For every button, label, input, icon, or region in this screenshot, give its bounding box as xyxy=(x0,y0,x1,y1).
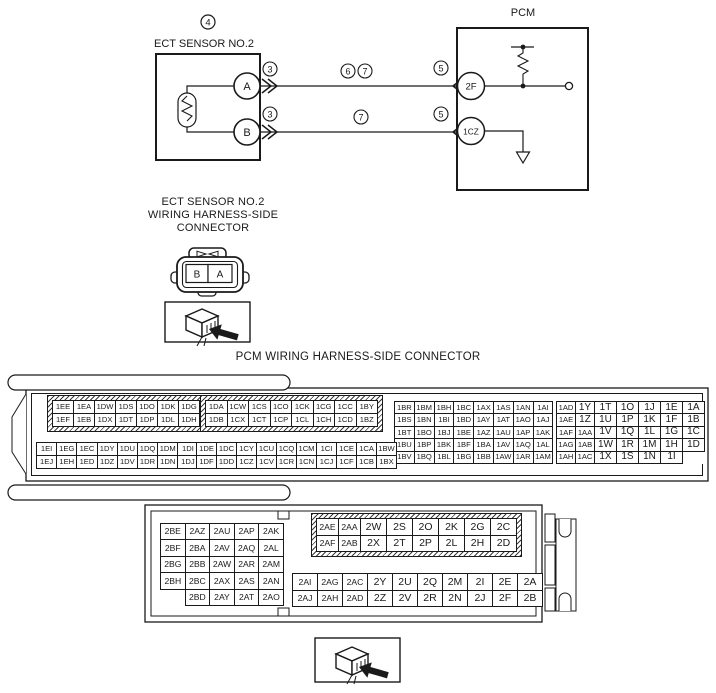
terminal-cell-2AA: 2AA xyxy=(339,519,361,536)
terminal-cell-1DN: 1DN xyxy=(158,456,178,469)
terminal-cell-2AV: 2AV xyxy=(210,540,235,556)
terminal-cell-1AU: 1AU xyxy=(493,426,513,438)
ect-view-icon-box xyxy=(165,302,250,346)
terminal-cell-1AH: 1AH xyxy=(557,451,576,463)
terminal-cell-1CD: 1CD xyxy=(335,414,357,427)
terminal-cell-1CB: 1CB xyxy=(357,456,377,469)
terminal-cell-1EI: 1EI xyxy=(37,443,57,456)
terminal-cell-2AU: 2AU xyxy=(210,524,235,540)
terminal-cell-2AB: 2AB xyxy=(339,535,361,552)
terminal-cell-2AZ: 2AZ xyxy=(185,524,210,540)
svg-text:5: 5 xyxy=(438,63,443,73)
terminal-cell-2AC: 2AC xyxy=(343,574,368,591)
terminal-cell-1CR: 1CR xyxy=(277,456,297,469)
terminal-cell-1M: 1M xyxy=(639,439,661,451)
terminal-cell-1CP: 1CP xyxy=(270,414,292,427)
terminal-cell-2B: 2B xyxy=(518,590,543,607)
terminal-cell-2BD: 2BD xyxy=(185,589,210,605)
terminal-cell-1DT: 1DT xyxy=(116,414,137,427)
terminal-cell-1BM: 1BM xyxy=(414,402,434,414)
terminal-cell-1BF: 1BF xyxy=(454,439,474,451)
terminal-cell-2AJ: 2AJ xyxy=(293,590,318,607)
terminal-block-2A-bottom: 2AI2AG2AC2Y2U2Q2M2I2E2A2AJ2AH2AD2Z2V2R2N… xyxy=(292,573,543,607)
terminal-cell-2S: 2S xyxy=(387,519,413,536)
terminal-cell-1BV: 1BV xyxy=(395,451,415,463)
terminal-cell-1X: 1X xyxy=(595,451,617,463)
mounting-bracket xyxy=(545,514,576,611)
internal-terminal-icon xyxy=(565,82,572,89)
terminal-cell-1AD: 1AD xyxy=(557,402,576,414)
pcm-pin-1cz: 1CZ xyxy=(458,118,485,145)
terminal-cell-2AT: 2AT xyxy=(234,589,259,605)
terminal-cell-2AS: 2AS xyxy=(234,573,259,589)
terminal-cell-1K: 1K xyxy=(639,414,661,426)
terminal-cell-2W: 2W xyxy=(361,519,387,536)
terminal-cell-1DB: 1DB xyxy=(206,414,228,427)
terminal-cell-2AO: 2AO xyxy=(259,589,284,605)
terminal-cell-1DH: 1DH xyxy=(179,414,200,427)
terminal-cell-1DJ: 1DJ xyxy=(178,456,198,469)
terminal-cell-2L: 2L xyxy=(439,535,465,552)
terminal-cell-1EH: 1EH xyxy=(57,456,77,469)
callout-3-bottom: 3 xyxy=(263,107,277,121)
terminal-cell-2M: 2M xyxy=(443,574,468,591)
terminal-cell-2R: 2R xyxy=(418,590,443,607)
terminal-cell-1DQ: 1DQ xyxy=(137,443,157,456)
terminal-cell-1BG: 1BG xyxy=(454,451,474,463)
terminal-cell-2AF: 2AF xyxy=(317,535,339,552)
pcm-connector-2: 2BE2AZ2AU2AP2AK2BF2BA2AV2AQ2AL2BG2BB2AW2… xyxy=(0,500,716,638)
terminal-block-1C-top: 1DA1CW1CS1CO1CK1CG1CC1BY1DB1CX1CT1CP1CL1… xyxy=(200,395,383,432)
svg-text:7: 7 xyxy=(358,112,363,122)
terminal-cell-1AA: 1AA xyxy=(576,426,595,438)
terminal-cell-1BY: 1BY xyxy=(356,401,378,414)
pcm-connector-title: PCM WIRING HARNESS-SIDE CONNECTOR xyxy=(0,351,716,363)
terminal-cell-1EA: 1EA xyxy=(74,401,95,414)
callout-5-top: 5 xyxy=(434,61,448,75)
terminal-cell-1DK: 1DK xyxy=(158,401,179,414)
terminal-cell-2N: 2N xyxy=(443,590,468,607)
terminal-cell-1CV: 1CV xyxy=(257,456,277,469)
terminal-cell-1EB: 1EB xyxy=(74,414,95,427)
terminal-cell-1AW: 1AW xyxy=(493,451,513,463)
terminal-cell-2U: 2U xyxy=(393,574,418,591)
terminal-cell-1AF: 1AF xyxy=(557,426,576,438)
terminal-cell-1AP: 1AP xyxy=(513,426,533,438)
terminal-cell-2BA: 2BA xyxy=(185,540,210,556)
terminal-cell-1F: 1F xyxy=(661,414,683,426)
terminal-cell-2H: 2H xyxy=(465,535,491,552)
terminal-cell-1BL: 1BL xyxy=(434,451,454,463)
terminal-cell-1DP: 1DP xyxy=(137,414,158,427)
svg-text:B: B xyxy=(243,127,250,139)
terminal-cell-1BB: 1BB xyxy=(474,451,494,463)
terminal-cell-2BG: 2BG xyxy=(161,556,186,572)
terminal-cell-1CE: 1CE xyxy=(337,443,357,456)
terminal-cell-2AG: 2AG xyxy=(318,574,343,591)
terminal-cell-1CG: 1CG xyxy=(313,401,335,414)
terminal-cell-1BD: 1BD xyxy=(454,414,474,426)
terminal-cell-1DX: 1DX xyxy=(95,414,116,427)
callout-7-top: 7 xyxy=(358,64,372,78)
terminal-cell-1CC: 1CC xyxy=(335,401,357,414)
terminal-cell-1AO: 1AO xyxy=(513,414,533,426)
terminal-cell-1BN: 1BN xyxy=(414,414,434,426)
terminal-cell-1CW: 1CW xyxy=(227,401,249,414)
terminal-cell-1CT: 1CT xyxy=(249,414,271,427)
terminal-cell-1D: 1D xyxy=(683,439,705,451)
terminal-cell-2BE: 2BE xyxy=(161,524,186,540)
terminal-cell-1BS: 1BS xyxy=(395,414,415,426)
terminal-cell-1DE: 1DE xyxy=(197,443,217,456)
terminal-cell-1DG: 1DG xyxy=(179,401,200,414)
terminal-cell-1AG: 1AG xyxy=(557,439,576,451)
terminal-cell-1AS: 1AS xyxy=(493,402,513,414)
sensor-pin-a: A xyxy=(234,73,260,99)
terminal-cell-1I: 1I xyxy=(661,451,683,463)
terminal-cell-1S: 1S xyxy=(617,451,639,463)
terminal-cell-1AT: 1AT xyxy=(493,414,513,426)
terminal-cell-1AJ: 1AJ xyxy=(533,414,553,426)
terminal-block-2B-left: 2BE2AZ2AU2AP2AK2BF2BA2AV2AQ2AL2BG2BB2AW2… xyxy=(160,523,284,606)
terminal-cell-1C: 1C xyxy=(683,426,705,438)
callout-7-bottom: 7 xyxy=(354,110,368,124)
terminal-cell-2Z: 2Z xyxy=(368,590,393,607)
terminal-cell-1CX: 1CX xyxy=(227,414,249,427)
svg-text:A: A xyxy=(243,81,251,93)
terminal-cell-1AY: 1AY xyxy=(474,414,494,426)
terminal-cell-1G: 1G xyxy=(661,426,683,438)
terminal-cell-1O: 1O xyxy=(617,402,639,414)
terminal-cell-1AX: 1AX xyxy=(474,402,494,414)
terminal-cell-1DF: 1DF xyxy=(197,456,217,469)
terminal-cell-2BH: 2BH xyxy=(161,573,186,589)
terminal-cell-1BH: 1BH xyxy=(434,402,454,414)
terminal-cell-1BE: 1BE xyxy=(454,426,474,438)
terminal-block-1E-bottom: 1EI1EG1EC1DY1DU1DQ1DM1DI1EJ1EH1ED1DZ1DV1… xyxy=(36,442,199,469)
terminal-cell-1AV: 1AV xyxy=(493,439,513,451)
terminal-cell-1Q: 1Q xyxy=(617,426,639,438)
terminal-cell-1E: 1E xyxy=(661,402,683,414)
circuit-diagram: 4 ECT SENSOR NO.2 A B 3 3 xyxy=(0,0,716,200)
terminal-cell-1AR: 1AR xyxy=(513,451,533,463)
terminal-cell-1EE: 1EE xyxy=(53,401,74,414)
terminal-cell-1AB: 1AB xyxy=(576,439,595,451)
terminal-block-1B: 1BR1BM1BH1BC1AX1AS1AN1AI1BS1BN1BI1BD1AY1… xyxy=(394,401,553,464)
svg-text:3: 3 xyxy=(267,64,272,74)
terminal-label-b: B xyxy=(194,270,201,281)
terminal-cell-1BZ: 1BZ xyxy=(356,414,378,427)
svg-text:7: 7 xyxy=(362,66,367,76)
terminal-cell-2I: 2I xyxy=(468,574,493,591)
terminal-cell-empty xyxy=(683,451,705,463)
terminal-cell-1DM: 1DM xyxy=(158,443,178,456)
terminal-cell-2K: 2K xyxy=(439,519,465,536)
terminal-cell-1DW: 1DW xyxy=(95,401,116,414)
terminal-block-1A: 1AD1Y1T1O1J1E1A1AE1Z1U1P1K1F1B1AF1AA1V1Q… xyxy=(556,401,705,464)
svg-text:4: 4 xyxy=(205,17,210,28)
terminal-cell-2AP: 2AP xyxy=(234,524,259,540)
svg-text:6: 6 xyxy=(345,66,350,76)
terminal-cell-1AI: 1AI xyxy=(533,402,553,414)
terminal-cell-1CQ: 1CQ xyxy=(277,443,297,456)
terminal-cell-1CK: 1CK xyxy=(292,401,314,414)
terminal-cell-1P: 1P xyxy=(617,414,639,426)
terminal-cell-1CY: 1CY xyxy=(237,443,257,456)
terminal-cell-1DI: 1DI xyxy=(178,443,198,456)
terminal-cell-empty xyxy=(161,589,186,605)
terminal-cell-1CS: 1CS xyxy=(249,401,271,414)
terminal-cell-1DY: 1DY xyxy=(97,443,117,456)
terminal-cell-1Z: 1Z xyxy=(576,414,595,426)
terminal-cell-2AR: 2AR xyxy=(234,556,259,572)
terminal-cell-1AQ: 1AQ xyxy=(513,439,533,451)
pcm-view-icon-box xyxy=(300,633,430,693)
thermistor-icon xyxy=(178,93,196,127)
terminal-cell-1CF: 1CF xyxy=(337,456,357,469)
svg-text:5: 5 xyxy=(438,109,443,119)
terminal-cell-1CM: 1CM xyxy=(297,443,317,456)
terminal-cell-1J: 1J xyxy=(639,402,661,414)
terminal-cell-2BC: 2BC xyxy=(185,573,210,589)
terminal-cell-1N: 1N xyxy=(639,451,661,463)
terminal-block-1E-top: 1EE1EA1DW1DS1DO1DK1DG1EF1EB1DX1DT1DP1DL1… xyxy=(47,395,205,432)
terminal-cell-2C: 2C xyxy=(491,519,517,536)
svg-text:1CZ: 1CZ xyxy=(463,126,479,136)
terminal-cell-2D: 2D xyxy=(491,535,517,552)
ect-connector-face: B A xyxy=(171,248,249,296)
terminal-cell-1B: 1B xyxy=(683,414,705,426)
callout-6: 6 xyxy=(341,64,355,78)
terminal-cell-2BB: 2BB xyxy=(185,556,210,572)
terminal-cell-1BK: 1BK xyxy=(434,439,454,451)
terminal-cell-2P: 2P xyxy=(413,535,439,552)
terminal-cell-1BX: 1BX xyxy=(377,456,397,469)
terminal-cell-2AD: 2AD xyxy=(343,590,368,607)
terminal-cell-2AY: 2AY xyxy=(210,589,235,605)
terminal-cell-1AL: 1AL xyxy=(533,439,553,451)
terminal-cell-2O: 2O xyxy=(413,519,439,536)
svg-text:3: 3 xyxy=(267,109,272,119)
terminal-cell-1A: 1A xyxy=(683,402,705,414)
terminal-cell-1CH: 1CH xyxy=(313,414,335,427)
terminal-cell-1DA: 1DA xyxy=(206,401,228,414)
terminal-cell-1BP: 1BP xyxy=(414,439,434,451)
terminal-cell-1H: 1H xyxy=(661,439,683,451)
terminal-cell-2F: 2F xyxy=(493,590,518,607)
terminal-cell-2AH: 2AH xyxy=(318,590,343,607)
ect-connector-drawing: B A xyxy=(0,200,716,350)
terminal-cell-1AM: 1AM xyxy=(533,451,553,463)
pcm-pin-2f: 2F xyxy=(458,73,485,100)
terminal-cell-1BO: 1BO xyxy=(414,426,434,438)
callout-4: 4 xyxy=(201,15,215,29)
terminal-cell-1AC: 1AC xyxy=(576,451,595,463)
terminal-cell-1BJ: 1BJ xyxy=(434,426,454,438)
svg-text:2F: 2F xyxy=(465,82,476,93)
terminal-label-a: A xyxy=(217,270,224,281)
terminal-cell-1DR: 1DR xyxy=(137,456,157,469)
wiring-diagram-page: { "colors": {"ink": "#1a1a1a", "paper": … xyxy=(0,0,716,693)
terminal-cell-2AX: 2AX xyxy=(210,573,235,589)
terminal-cell-2AI: 2AI xyxy=(293,574,318,591)
terminal-cell-1CU: 1CU xyxy=(257,443,277,456)
terminal-block-2A-top: 2AE2AA2W2S2O2K2G2C2AF2AB2X2T2P2L2H2D xyxy=(311,513,522,557)
terminal-cell-1DC: 1DC xyxy=(217,443,237,456)
terminal-cell-1BI: 1BI xyxy=(434,414,454,426)
terminal-cell-1BQ: 1BQ xyxy=(414,451,434,463)
terminal-cell-1V: 1V xyxy=(595,426,617,438)
terminal-cell-1DV: 1DV xyxy=(117,456,137,469)
terminal-cell-1DS: 1DS xyxy=(116,401,137,414)
terminal-cell-1CI: 1CI xyxy=(317,443,337,456)
terminal-cell-1EG: 1EG xyxy=(57,443,77,456)
terminal-cell-1BR: 1BR xyxy=(395,402,415,414)
terminal-cell-1DZ: 1DZ xyxy=(97,456,117,469)
terminal-cell-2J: 2J xyxy=(468,590,493,607)
terminal-cell-1BU: 1BU xyxy=(395,439,415,451)
terminal-cell-2AE: 2AE xyxy=(317,519,339,536)
terminal-cell-1EF: 1EF xyxy=(53,414,74,427)
terminal-cell-1CO: 1CO xyxy=(270,401,292,414)
terminal-cell-1U: 1U xyxy=(595,414,617,426)
callout-5-bottom: 5 xyxy=(434,107,448,121)
terminal-cell-2A: 2A xyxy=(518,574,543,591)
terminal-cell-1BA: 1BA xyxy=(474,439,494,451)
terminal-cell-2AN: 2AN xyxy=(259,573,284,589)
terminal-cell-2E: 2E xyxy=(493,574,518,591)
terminal-cell-1CJ: 1CJ xyxy=(317,456,337,469)
terminal-cell-2AW: 2AW xyxy=(210,556,235,572)
terminal-cell-1CZ: 1CZ xyxy=(237,456,257,469)
callout-3-top: 3 xyxy=(263,62,277,76)
terminal-cell-1BW: 1BW xyxy=(377,443,397,456)
terminal-cell-1CN: 1CN xyxy=(297,456,317,469)
terminal-cell-1W: 1W xyxy=(595,439,617,451)
terminal-cell-1AZ: 1AZ xyxy=(474,426,494,438)
terminal-cell-1R: 1R xyxy=(617,439,639,451)
terminal-cell-1AN: 1AN xyxy=(513,402,533,414)
terminal-cell-1DO: 1DO xyxy=(137,401,158,414)
terminal-cell-2G: 2G xyxy=(465,519,491,536)
pcm-label: PCM xyxy=(511,7,535,19)
terminal-cell-1BC: 1BC xyxy=(454,402,474,414)
terminal-cell-2AQ: 2AQ xyxy=(234,540,259,556)
connector-rail-bottom xyxy=(8,485,290,500)
terminal-cell-1DU: 1DU xyxy=(117,443,137,456)
terminal-block-1C-bottom: 1DE1DC1CY1CU1CQ1CM1CI1CE1CA1BW1DF1DD1CZ1… xyxy=(196,442,397,469)
terminal-cell-2AK: 2AK xyxy=(259,524,284,540)
terminal-cell-2Y: 2Y xyxy=(368,574,393,591)
sensor-pin-b: B xyxy=(234,119,260,145)
terminal-cell-1CL: 1CL xyxy=(292,414,314,427)
terminal-cell-2BF: 2BF xyxy=(161,540,186,556)
terminal-cell-1DL: 1DL xyxy=(158,414,179,427)
terminal-cell-1AK: 1AK xyxy=(533,426,553,438)
ect-sensor-label: ECT SENSOR NO.2 xyxy=(154,38,254,50)
terminal-cell-1DD: 1DD xyxy=(217,456,237,469)
terminal-cell-1BT: 1BT xyxy=(395,426,415,438)
pcm-box xyxy=(457,28,588,190)
terminal-cell-1CA: 1CA xyxy=(357,443,377,456)
connector-rail-top xyxy=(8,375,290,390)
terminal-cell-1EC: 1EC xyxy=(77,443,97,456)
terminal-cell-2T: 2T xyxy=(387,535,413,552)
terminal-cell-1L: 1L xyxy=(639,426,661,438)
terminal-cell-1EJ: 1EJ xyxy=(37,456,57,469)
terminal-cell-1AE: 1AE xyxy=(557,414,576,426)
terminal-cell-2Q: 2Q xyxy=(418,574,443,591)
terminal-cell-2V: 2V xyxy=(393,590,418,607)
terminal-cell-2X: 2X xyxy=(361,535,387,552)
terminal-cell-2AL: 2AL xyxy=(259,540,284,556)
terminal-cell-1ED: 1ED xyxy=(77,456,97,469)
terminal-cell-2AM: 2AM xyxy=(259,556,284,572)
terminal-cell-1T: 1T xyxy=(595,402,617,414)
terminal-cell-1Y: 1Y xyxy=(576,402,595,414)
pcm-connector-1: 1EE1EA1DW1DS1DO1DK1DG1EF1EB1DX1DT1DP1DL1… xyxy=(0,372,716,506)
